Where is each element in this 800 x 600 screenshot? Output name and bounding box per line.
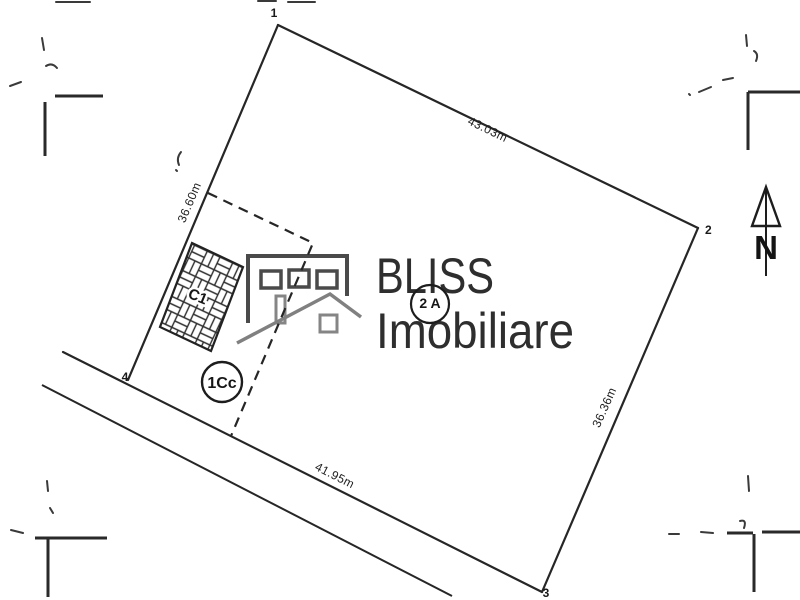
watermark-brand-subtitle: Imobiliare <box>376 303 574 359</box>
zone-1cc: 1Cc <box>202 362 242 402</box>
north-label: N <box>754 229 778 266</box>
zone-1cc-label: 1Cc <box>207 375 236 392</box>
corner-label-2: 2 <box>705 223 712 237</box>
zone-2a-label: 2 A <box>419 295 440 311</box>
corner-label-1: 1 <box>271 6 278 20</box>
site-plan-drawing: BLISS Imobiliare C1 1Cc 2 A N <box>0 0 800 600</box>
scanned-site-plan-page: BLISS Imobiliare C1 1Cc 2 A N <box>0 0 800 600</box>
corner-label-4: 4 <box>122 370 129 384</box>
corner-label-3: 3 <box>543 586 550 600</box>
